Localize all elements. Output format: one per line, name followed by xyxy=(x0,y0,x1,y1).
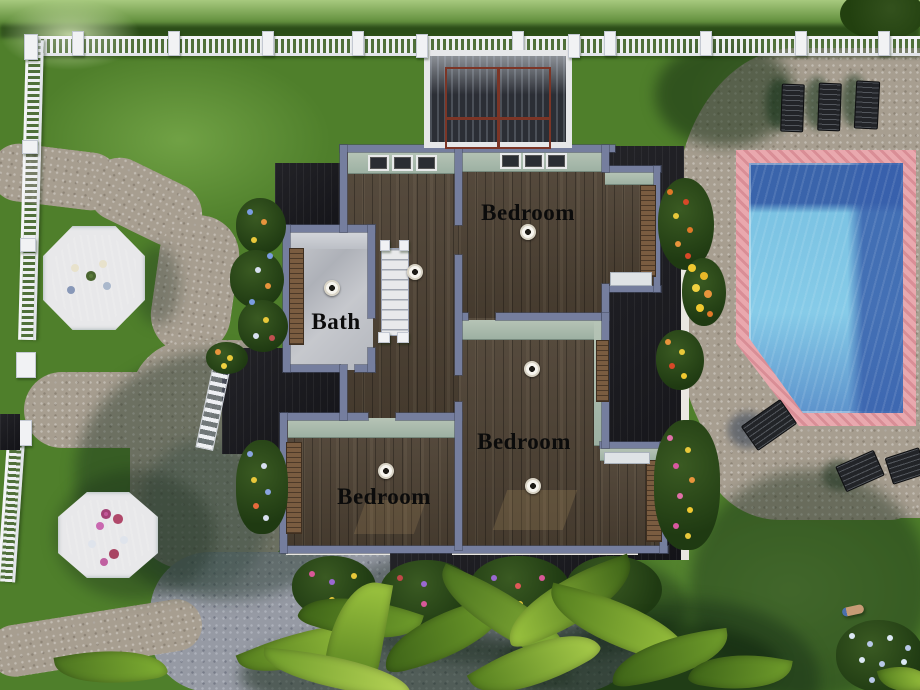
room-label-bedroom-top-right: Bedroom xyxy=(481,200,575,226)
wall xyxy=(368,225,375,318)
game-viewport: Bedroom Bedroom Bedroom Bath xyxy=(0,0,920,690)
room-label-bedroom-middle-right: Bedroom xyxy=(477,429,571,455)
window-shutter[interactable] xyxy=(289,248,304,345)
flowers xyxy=(666,340,670,344)
window-shutter[interactable] xyxy=(640,185,656,277)
fence-post xyxy=(20,238,36,252)
fountain-ornament xyxy=(89,274,93,278)
flower-bush[interactable] xyxy=(658,178,714,270)
stair-newel xyxy=(380,240,390,251)
wall xyxy=(282,546,668,553)
window[interactable] xyxy=(546,153,567,169)
fence-post xyxy=(795,31,807,56)
wall xyxy=(285,365,340,372)
flower-bush[interactable] xyxy=(656,330,704,390)
window[interactable] xyxy=(392,155,413,171)
flower-bush[interactable] xyxy=(654,420,720,550)
ceiling-light[interactable] xyxy=(520,224,536,240)
offlot-haze-corner xyxy=(0,0,140,70)
fence-post xyxy=(352,31,364,56)
flowers xyxy=(690,266,694,270)
wall-face-bay1-north xyxy=(605,172,657,185)
ceiling-light[interactable] xyxy=(324,280,340,296)
fence-post xyxy=(700,31,712,56)
flowers xyxy=(850,634,854,638)
flower-bush[interactable] xyxy=(238,300,288,352)
fountain-water xyxy=(66,500,150,570)
lounge-chair[interactable] xyxy=(817,83,842,132)
staircase[interactable] xyxy=(381,248,409,336)
lounge-chair[interactable] xyxy=(780,84,805,133)
ceiling-light[interactable] xyxy=(407,264,423,280)
wall xyxy=(340,145,347,232)
pool-water xyxy=(749,163,903,413)
ceiling-light[interactable] xyxy=(378,463,394,479)
window[interactable] xyxy=(500,153,521,169)
window-shutter[interactable] xyxy=(596,340,609,402)
wall xyxy=(455,255,462,375)
stair-newel xyxy=(378,332,390,343)
flower-bush[interactable] xyxy=(236,198,286,254)
wall xyxy=(368,348,375,372)
wall xyxy=(282,413,368,420)
wall-face-bedroom2-north xyxy=(460,320,606,340)
room-label-bedroom-bottom-left: Bedroom xyxy=(337,484,431,510)
fence-post xyxy=(262,31,274,56)
flowers xyxy=(310,572,314,576)
wall xyxy=(605,166,661,172)
fence-post xyxy=(24,34,38,60)
pergola-glass-mullion-h xyxy=(447,117,549,120)
lounge-chair[interactable] xyxy=(854,80,880,129)
garden-gate-post[interactable] xyxy=(16,352,36,378)
pergola-post xyxy=(568,34,580,58)
wall xyxy=(396,413,462,420)
pergola-post xyxy=(416,34,428,58)
wall-face-bath-north xyxy=(290,232,371,249)
flowers xyxy=(668,436,672,440)
window-seat[interactable] xyxy=(604,452,650,464)
flowers xyxy=(248,210,252,214)
garden-fountain-south[interactable] xyxy=(58,492,158,578)
wall xyxy=(496,313,608,320)
fence-post xyxy=(72,31,84,56)
stair-newel xyxy=(399,240,409,251)
pergola-glass-frame xyxy=(445,67,551,149)
ceiling-light[interactable] xyxy=(525,478,541,494)
water-lilies xyxy=(104,512,108,516)
window-seat[interactable] xyxy=(610,272,652,286)
flowers xyxy=(216,350,220,354)
flowers xyxy=(668,190,672,194)
wall xyxy=(602,145,609,172)
fence-post xyxy=(604,31,616,56)
garden-fountain-north[interactable] xyxy=(43,226,145,330)
fence-post xyxy=(22,140,38,154)
flowers xyxy=(248,452,252,456)
flower-bush[interactable] xyxy=(206,342,248,374)
window[interactable] xyxy=(416,155,437,171)
flower-bush[interactable] xyxy=(236,440,288,534)
wall xyxy=(605,286,661,292)
wall-face-bedroom3-north xyxy=(288,418,458,438)
wall xyxy=(285,225,375,232)
pool-ripples xyxy=(749,163,903,413)
stair-newel xyxy=(397,332,409,343)
fence-post xyxy=(878,31,890,56)
pergola-glass-mullion-v xyxy=(497,69,500,147)
room-label-bath: Bath xyxy=(311,309,360,335)
window[interactable] xyxy=(523,153,544,169)
wall xyxy=(340,365,347,420)
gate-arbor-roof xyxy=(0,414,20,450)
ceiling-light[interactable] xyxy=(524,361,540,377)
white-fence-left-lower xyxy=(0,442,25,583)
wall xyxy=(455,402,462,550)
entry-pergola[interactable] xyxy=(424,50,572,148)
window-shutter[interactable] xyxy=(286,442,302,534)
sunlight-patch xyxy=(493,490,578,530)
window[interactable] xyxy=(368,155,389,171)
fountain-water xyxy=(52,235,136,321)
fence-post xyxy=(168,31,180,56)
flower-bush[interactable] xyxy=(682,258,726,326)
wall xyxy=(455,145,462,225)
